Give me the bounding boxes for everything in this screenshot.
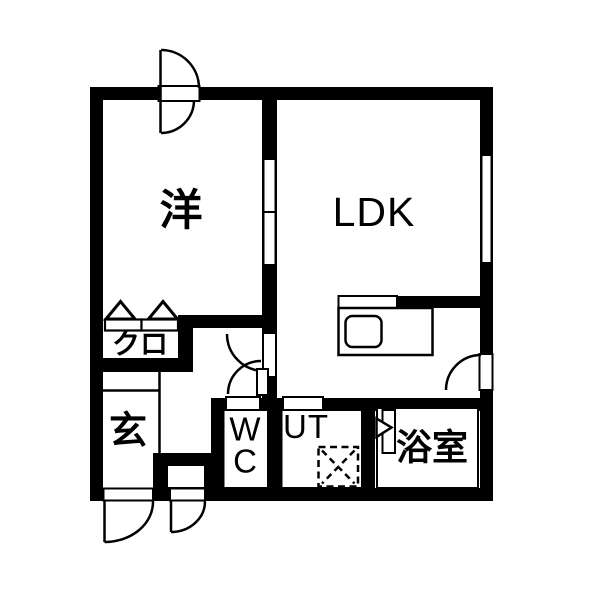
small-door-opening: [170, 489, 205, 501]
kitchen-sink-icon: [346, 316, 382, 347]
wc-door-leaf: [257, 369, 268, 395]
top-door-opening: [159, 86, 200, 101]
floorplan-drawing: [0, 0, 600, 600]
floorplan-canvas: 洋 LDK クロ 玄 W C UT 浴室: [0, 0, 600, 600]
entrance-door-opening: [104, 489, 154, 501]
wall-left: [90, 87, 103, 501]
wall-ut-bath: [362, 398, 375, 495]
balcony-door-arc: [446, 355, 481, 390]
room-label-bathroom: 浴室: [396, 429, 468, 464]
right-wall-window: [482, 155, 492, 263]
closet-folding-door: [105, 302, 178, 331]
room-label-ldk: LDK: [333, 192, 416, 232]
kitchen-counter: [339, 308, 433, 355]
wall-closet-bottom: [103, 358, 193, 372]
folding-door-triangle-2: [149, 302, 178, 320]
entrance-door-arc: [105, 502, 154, 543]
room-label-wc: W C: [229, 414, 260, 479]
wall-right: [480, 87, 493, 501]
wall-top: [90, 87, 493, 100]
top-door-arc-inner: [161, 100, 194, 133]
wall-niche-right: [205, 453, 215, 488]
room-label-western: 洋: [160, 190, 203, 232]
small-door-arc: [171, 502, 205, 533]
wall-niche-left: [153, 453, 167, 488]
folding-door-triangle-1: [106, 302, 135, 320]
room-label-utility: UT: [283, 411, 329, 443]
room-label-closet: クロ: [112, 330, 168, 357]
wall-kitchen-stub: [397, 296, 480, 308]
room-label-entrance: 玄: [109, 413, 147, 450]
wc-door-opening: [226, 397, 260, 410]
balcony-door-leaf: [480, 354, 493, 390]
kitchen-counter-back: [339, 296, 398, 308]
top-door-arc-outer: [161, 50, 199, 88]
wall-wc-ut: [268, 398, 281, 488]
niche-box: [167, 465, 205, 488]
